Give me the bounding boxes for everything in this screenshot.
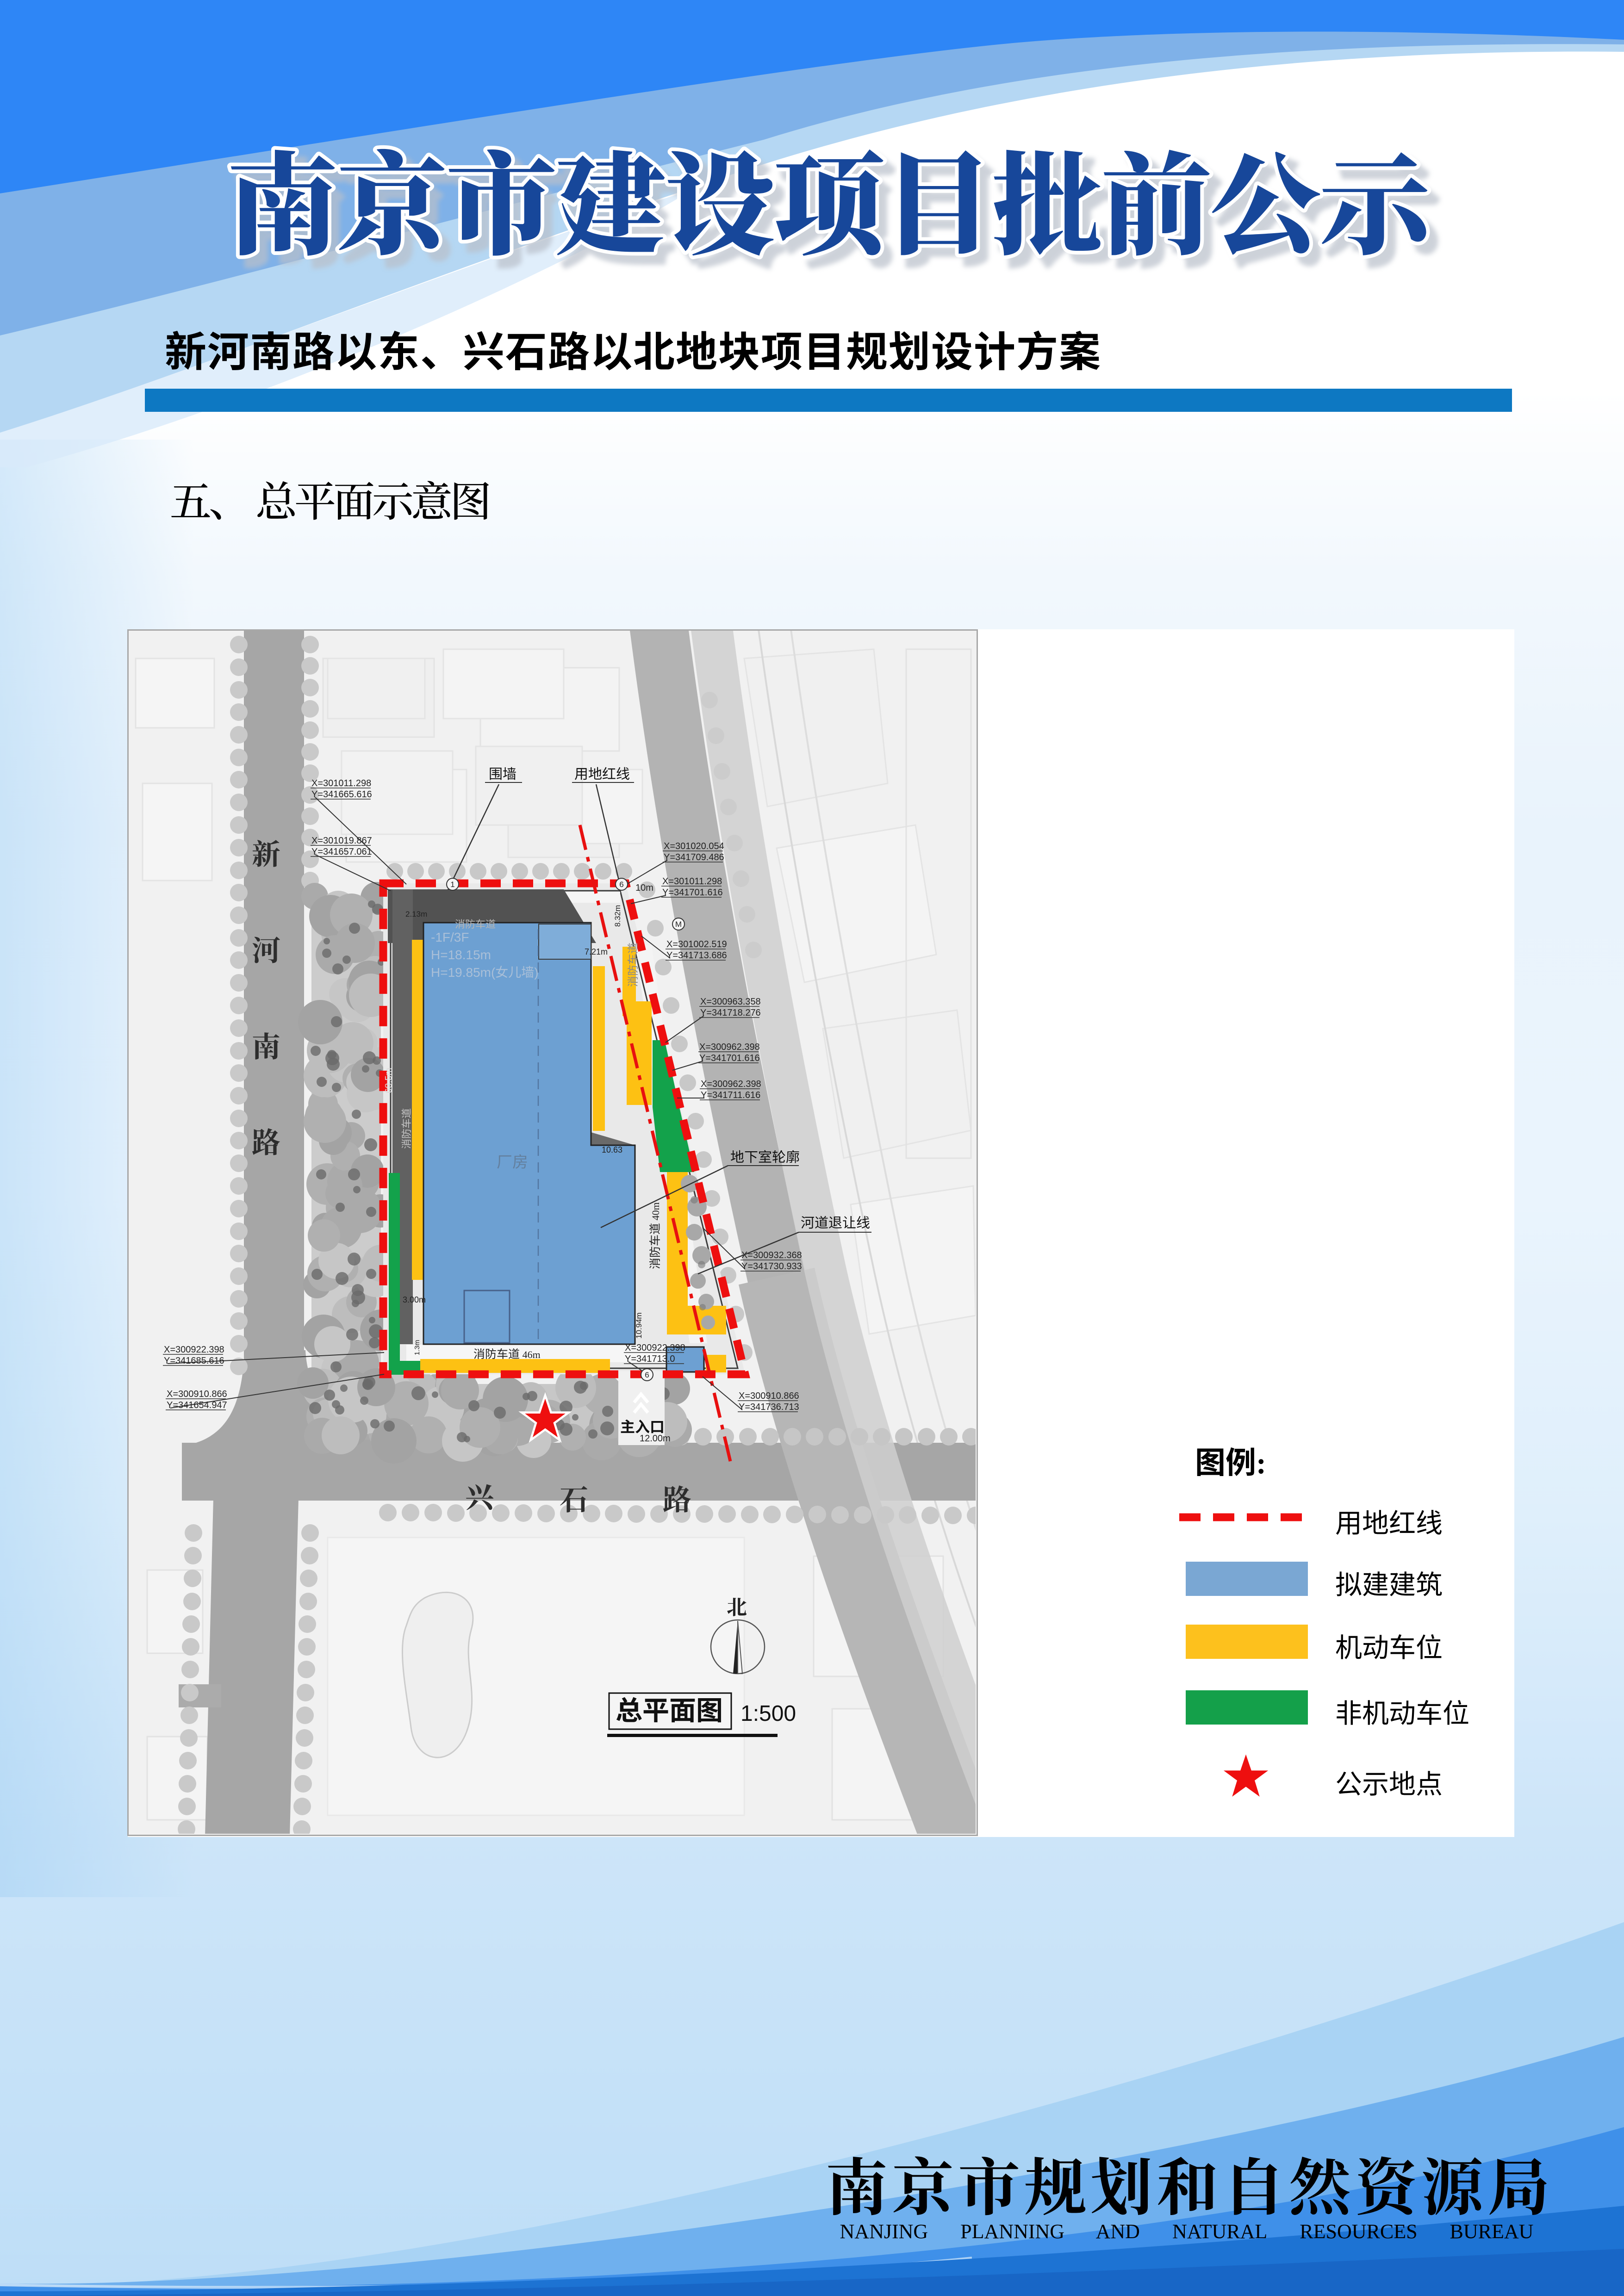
- svg-text:M: M: [675, 920, 682, 929]
- svg-text:消防车道 40m: 消防车道 40m: [646, 1202, 663, 1269]
- svg-text:X=300962.398: X=300962.398: [699, 1042, 760, 1052]
- svg-text:68.5m: 68.5m: [384, 1067, 394, 1093]
- svg-text:H=19.85m(女儿墙): H=19.85m(女儿墙): [431, 962, 539, 981]
- svg-text:Y=341736.713: Y=341736.713: [739, 1402, 799, 1412]
- svg-text:X=300910.866: X=300910.866: [739, 1391, 799, 1401]
- svg-text:Y=341713.686: Y=341713.686: [666, 950, 727, 961]
- svg-text:Y=341730.933: Y=341730.933: [741, 1261, 802, 1272]
- svg-text:Y=341685.616: Y=341685.616: [164, 1356, 224, 1366]
- svg-text:Y=341713.0: Y=341713.0: [625, 1354, 675, 1364]
- svg-text:Y=341701.616: Y=341701.616: [662, 887, 723, 898]
- svg-text:Y=341718.276: Y=341718.276: [700, 1008, 761, 1018]
- svg-text:消防车道: 消防车道: [455, 916, 496, 931]
- svg-text:北: 北: [727, 1591, 747, 1620]
- svg-text:1.3m: 1.3m: [413, 1340, 421, 1355]
- svg-text:总平面图: 总平面图: [616, 1689, 723, 1728]
- svg-text:X=301020.054: X=301020.054: [664, 841, 724, 851]
- svg-text:1:500: 1:500: [740, 1701, 796, 1726]
- svg-text:3.00m: 3.00m: [403, 1295, 426, 1304]
- svg-text:主入口: 主入口: [620, 1415, 665, 1437]
- svg-text:8.32m: 8.32m: [613, 905, 622, 927]
- svg-text:Y=341711.616: Y=341711.616: [701, 1090, 760, 1100]
- svg-text:H=18.15m: H=18.15m: [431, 945, 491, 963]
- svg-text:X=300922.398: X=300922.398: [625, 1343, 685, 1353]
- svg-text:消防车道 46m: 消防车道 46m: [473, 1345, 541, 1362]
- svg-text:7.21m: 7.21m: [585, 947, 608, 956]
- svg-text:10.63: 10.63: [602, 1145, 622, 1154]
- svg-text:Y=341657.061: Y=341657.061: [311, 847, 372, 857]
- svg-text:Y=341709.486: Y=341709.486: [664, 852, 724, 863]
- svg-text:X=301011.298: X=301011.298: [311, 778, 371, 788]
- svg-text:新: 新: [252, 832, 280, 873]
- svg-text:Y=341701.616: Y=341701.616: [699, 1053, 760, 1063]
- svg-text:X=300922.398: X=300922.398: [164, 1345, 224, 1355]
- svg-text:消防车道: 消防车道: [624, 943, 640, 987]
- svg-text:1: 1: [450, 880, 454, 889]
- svg-text:10.94m: 10.94m: [635, 1312, 643, 1339]
- svg-text:南: 南: [252, 1024, 280, 1065]
- svg-text:2.13m: 2.13m: [405, 910, 427, 918]
- svg-text:消防车道: 消防车道: [398, 1108, 413, 1149]
- svg-text:用地红线: 用地红线: [574, 763, 630, 783]
- svg-text:路: 路: [663, 1477, 691, 1518]
- svg-text:6: 6: [619, 880, 623, 889]
- svg-text:X=300963.358: X=300963.358: [700, 997, 761, 1007]
- svg-text:石: 石: [560, 1477, 588, 1518]
- svg-text:河: 河: [252, 928, 280, 969]
- svg-text:路: 路: [252, 1120, 280, 1161]
- svg-text:X=301002.519: X=301002.519: [666, 939, 727, 949]
- svg-text:Y=341654.947: Y=341654.947: [167, 1400, 227, 1410]
- svg-text:10m: 10m: [635, 883, 653, 893]
- svg-text:X=300910.866: X=300910.866: [167, 1389, 227, 1399]
- svg-text:厂房: 厂房: [497, 1149, 528, 1172]
- svg-text:X=301011.298: X=301011.298: [662, 876, 722, 887]
- svg-text:兴: 兴: [465, 1475, 496, 1516]
- svg-text:南京市建设项目批前公示: 南京市建设项目批前公示: [227, 117, 1441, 277]
- svg-text:Y=341665.616: Y=341665.616: [311, 789, 372, 800]
- svg-text:X=301019.867: X=301019.867: [311, 836, 372, 846]
- svg-text:地下室轮廓: 地下室轮廓: [730, 1146, 800, 1166]
- svg-text:6: 6: [645, 1371, 649, 1379]
- svg-text:X=300962.398: X=300962.398: [701, 1079, 761, 1089]
- svg-text:河道退让线: 河道退让线: [801, 1211, 870, 1232]
- svg-text:围墙: 围墙: [489, 763, 516, 783]
